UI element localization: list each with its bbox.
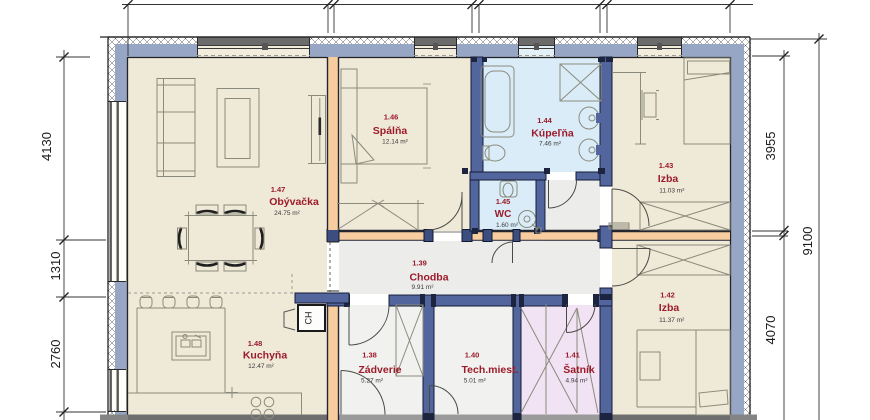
svg-text:CH: CH	[304, 312, 314, 325]
svg-text:2760: 2760	[48, 340, 63, 369]
svg-text:1.40: 1.40	[465, 351, 480, 360]
svg-text:4070: 4070	[763, 316, 778, 345]
svg-text:Spálňa: Spálňa	[373, 125, 408, 137]
svg-text:4.94 m²: 4.94 m²	[565, 378, 588, 385]
svg-text:Chodba: Chodba	[409, 272, 448, 284]
svg-text:5.01 m²: 5.01 m²	[464, 378, 487, 385]
svg-text:1310: 1310	[48, 252, 63, 281]
svg-text:1.44: 1.44	[537, 116, 552, 125]
svg-text:1.46: 1.46	[384, 113, 399, 122]
svg-text:Šatník: Šatník	[563, 363, 595, 376]
svg-text:24.75 m²: 24.75 m²	[274, 210, 300, 217]
svg-text:WC: WC	[495, 209, 512, 220]
svg-text:1.38: 1.38	[362, 351, 377, 360]
svg-text:1.41: 1.41	[565, 351, 580, 360]
svg-text:7.46 m²: 7.46 m²	[539, 141, 562, 148]
svg-text:5.27 m²: 5.27 m²	[361, 378, 384, 385]
svg-text:1.45: 1.45	[496, 197, 511, 206]
svg-text:Izba: Izba	[658, 173, 679, 185]
svg-text:Tech.miest.: Tech.miest.	[462, 364, 519, 376]
svg-text:1.47: 1.47	[271, 185, 286, 194]
svg-text:Zádverie: Zádverie	[358, 364, 401, 376]
svg-text:Izba: Izba	[659, 302, 680, 314]
svg-text:11.37 m²: 11.37 m²	[659, 317, 685, 324]
svg-text:1.42: 1.42	[660, 291, 675, 300]
svg-text:1.60 m²: 1.60 m²	[496, 222, 519, 229]
svg-text:Kúpeľňa: Kúpeľňa	[531, 128, 574, 140]
svg-text:11.03 m²: 11.03 m²	[659, 188, 685, 195]
svg-text:12.47 m²: 12.47 m²	[248, 363, 274, 370]
svg-text:9100: 9100	[800, 227, 815, 256]
svg-text:Obývačka: Obývačka	[269, 196, 319, 208]
svg-text:9.91 m²: 9.91 m²	[411, 284, 434, 291]
svg-text:1.39: 1.39	[412, 259, 427, 268]
svg-text:Kuchyňa: Kuchyňa	[243, 350, 288, 362]
svg-text:1.48: 1.48	[248, 339, 263, 348]
svg-text:1.43: 1.43	[659, 161, 674, 170]
svg-text:3955: 3955	[763, 132, 778, 161]
svg-text:4130: 4130	[39, 132, 54, 161]
svg-text:12.14 m²: 12.14 m²	[382, 139, 408, 146]
